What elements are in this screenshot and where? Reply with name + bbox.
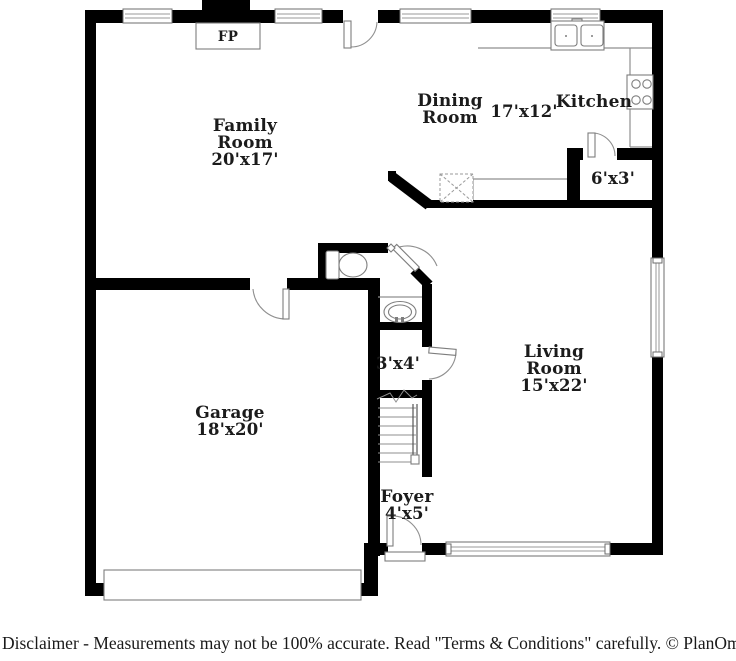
- garage-entry-door: [253, 289, 289, 319]
- foyer-dims: 4'x5': [385, 504, 429, 523]
- newel-post: [411, 455, 419, 464]
- fireplace-label: FP: [218, 29, 238, 45]
- garage-door: [104, 570, 361, 600]
- dishwasher: [440, 174, 473, 202]
- family-room-dims: 20'x17': [211, 150, 278, 169]
- back-door: [344, 21, 377, 48]
- stairs: [377, 390, 419, 464]
- toilet: [326, 251, 367, 279]
- copyright-text: © PlanOmatic: [666, 633, 736, 653]
- pantry-dims: 6'x3': [591, 169, 635, 188]
- window: [446, 542, 610, 556]
- door-sill: [385, 552, 425, 561]
- fireplace: FP: [196, 23, 260, 49]
- vanity-sink: [378, 297, 422, 323]
- half-bath-door: [387, 244, 437, 271]
- window: [275, 9, 322, 23]
- half-bath-dims: 3'x4': [376, 354, 420, 373]
- dining-room-dims: 17'x12': [490, 102, 557, 121]
- walls: [85, 0, 663, 596]
- pantry-door: [588, 133, 615, 157]
- disclaimer-text: Disclaimer - Measurements may not be 100…: [2, 633, 661, 653]
- closet-door: [429, 347, 456, 379]
- window: [400, 9, 471, 23]
- window: [651, 258, 664, 357]
- living-room-dims: 15'x22': [520, 376, 587, 395]
- window: [123, 9, 172, 23]
- disclaimer-bar: Disclaimer - Measurements may not be 100…: [0, 633, 736, 659]
- kitchen-sink: [551, 19, 604, 50]
- chimney: [202, 0, 250, 12]
- dining-room-label: Room: [422, 108, 478, 128]
- kitchen-label: Kitchen: [556, 92, 632, 112]
- garage-dims: 18'x20': [196, 420, 263, 439]
- floor-plan: FP: [0, 0, 736, 630]
